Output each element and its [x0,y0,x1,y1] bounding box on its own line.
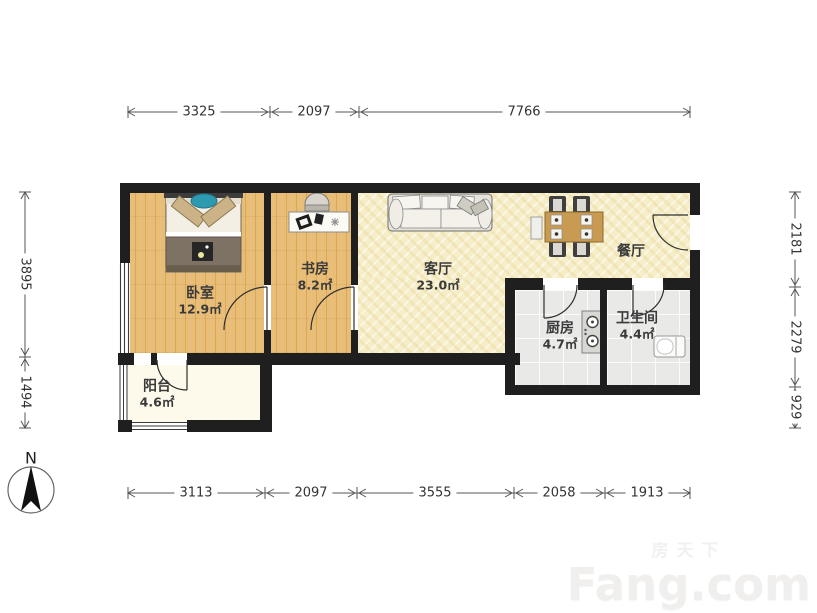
room-name: 卧室 [178,285,221,302]
dim-right-1: 2181 [788,218,803,259]
room-name: 书房 [298,261,333,278]
compass-north-label: N [25,449,37,468]
dining-set-icon [531,196,603,257]
bathroom-label: 卫生间 4.4㎡ [616,310,658,341]
room-area: 4.4㎡ [616,327,658,342]
room-name: 客厅 [416,261,459,278]
dim-bottom-2: 2097 [289,486,332,501]
bedroom-label: 卧室 12.9㎡ [178,285,221,316]
room-name: 阳台 [140,378,175,395]
dim-bottom-5: 1913 [625,486,668,501]
sofa-icon [388,194,492,231]
room-area: 8.2㎡ [298,278,333,293]
balcony-left-window [120,365,127,422]
room-area: 4.6㎡ [140,395,175,410]
fang-logo: Fang.com [567,562,811,607]
dim-left-2: 1494 [18,371,33,412]
bedroom-window [121,263,129,353]
dim-bottom-1: 3113 [174,486,217,501]
room-name: 卫生间 [616,310,658,327]
fang-watermark: 房天下 Fang.com [567,543,811,607]
dim-bottom-4: 2058 [537,486,580,501]
bedroom-door-icon [224,287,267,330]
bed-icon [164,189,243,272]
dim-left-1: 3895 [18,253,33,294]
study-label: 书房 8.2㎡ [298,261,333,292]
dim-top-3: 7766 [502,105,545,120]
study-door-icon [311,287,354,330]
plan-drawing [0,0,817,613]
dining-label: 餐厅 [617,244,645,261]
toilet-icon [654,336,685,357]
balcony-label: 阳台 4.6㎡ [140,378,175,409]
balcony-bottom-window [132,423,187,430]
room-area: 4.7㎡ [543,337,578,352]
living-label: 客厅 23.0㎡ [416,261,459,292]
dim-top-2: 2097 [292,105,335,120]
entrance-door-icon [653,215,688,250]
room-name: 餐厅 [617,244,645,261]
floorplan-canvas: N 卧室 12.9㎡ 书房 8.2㎡ 客厅 23.0㎡ 餐厅 厨房 4.7㎡ 卫… [0,0,817,613]
stove-icon [582,311,603,353]
desk-icon [289,212,349,232]
dim-right-2: 2279 [788,316,803,357]
compass-icon [8,466,54,513]
dimension-lines [19,106,801,499]
dim-right-3: 929 [788,391,803,424]
dim-bottom-3: 3555 [413,486,456,501]
kitchen-label: 厨房 4.7㎡ [543,320,578,351]
room-area: 23.0㎡ [416,278,459,293]
dim-top-1: 3325 [177,105,220,120]
room-area: 12.9㎡ [178,302,221,317]
kitchen-door-icon [544,285,577,318]
room-name: 厨房 [543,320,578,337]
